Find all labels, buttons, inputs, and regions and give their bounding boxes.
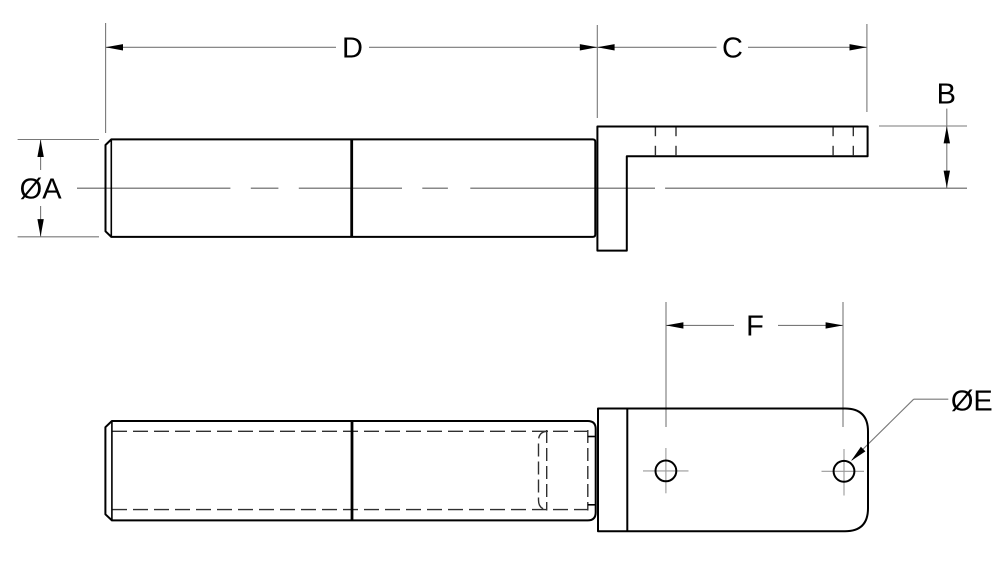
- svg-text:C: C: [722, 33, 743, 65]
- svg-text:D: D: [342, 33, 363, 65]
- svg-text:ØA: ØA: [20, 174, 63, 206]
- svg-text:ØE: ØE: [951, 386, 993, 418]
- svg-text:B: B: [937, 79, 956, 111]
- svg-text:F: F: [746, 311, 764, 343]
